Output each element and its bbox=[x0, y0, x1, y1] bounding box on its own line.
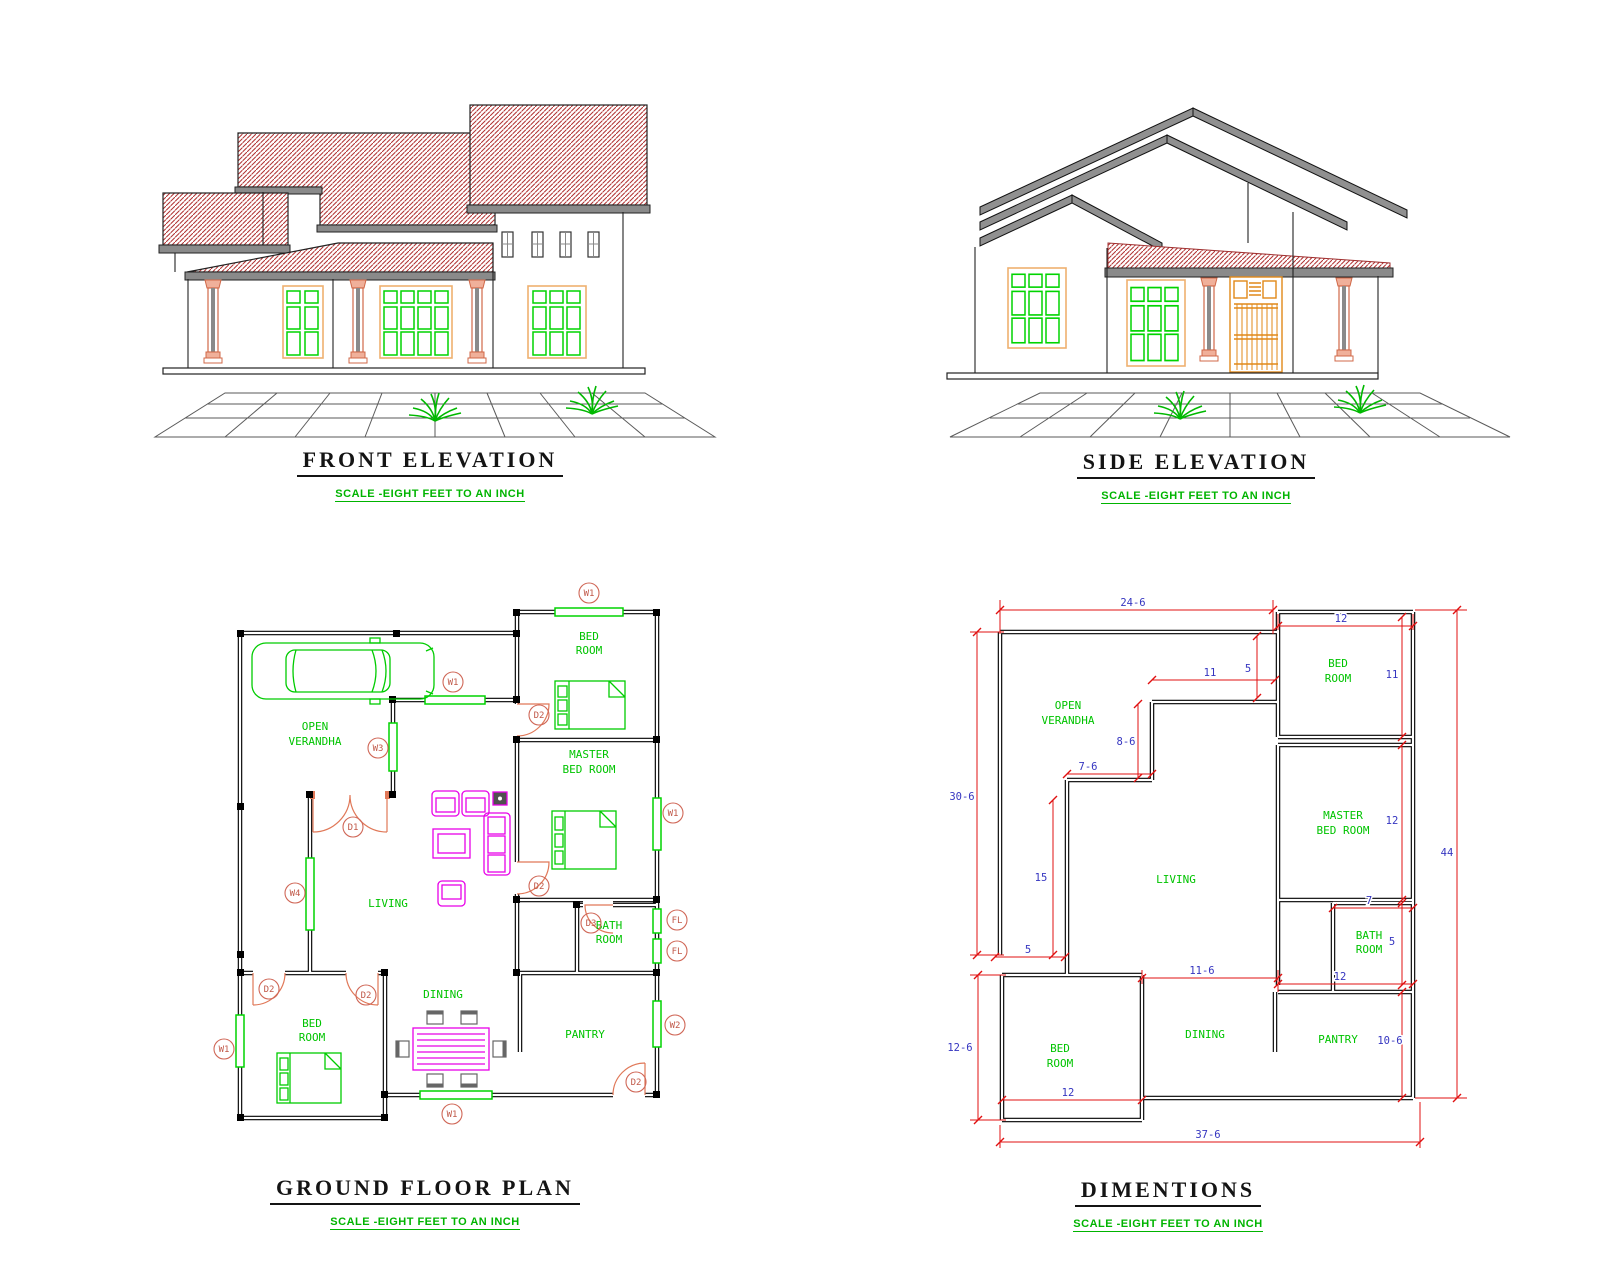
room-label-bath: ROOM bbox=[596, 933, 623, 946]
room-label-bath: BATH bbox=[1356, 929, 1383, 942]
dim-value: 5 bbox=[1025, 944, 1031, 956]
room-label-bedroom-top: ROOM bbox=[576, 644, 603, 657]
upper-right-roof bbox=[467, 105, 650, 213]
ground-line bbox=[947, 373, 1378, 379]
front-elevation-title-block: FRONT ELEVATION SCALE -EIGHT FEET TO AN … bbox=[230, 447, 630, 502]
room-label-dining: DINING bbox=[1185, 1028, 1225, 1041]
window bbox=[528, 286, 586, 358]
room-label-bath: ROOM bbox=[1356, 943, 1383, 956]
door-marker: D1 bbox=[348, 823, 359, 833]
veranda-roof bbox=[1105, 243, 1393, 277]
dimensions-title-block: DIMENTIONS SCALE -EIGHT FEET TO AN INCH bbox=[968, 1177, 1368, 1232]
dim-value: 7-6 bbox=[1079, 761, 1098, 773]
cad-drawing-sheet: OPEN VERANDHA BED ROOM MASTER BED ROOM L… bbox=[0, 0, 1600, 1280]
window-marker: W1 bbox=[447, 1110, 458, 1120]
dim-value: 5 bbox=[1245, 663, 1251, 675]
dim-value: 44 bbox=[1441, 847, 1454, 859]
window bbox=[380, 286, 452, 358]
window-marker: W1 bbox=[584, 589, 595, 599]
dimensions-title: DIMENTIONS bbox=[1075, 1177, 1261, 1207]
room-label-master: MASTER bbox=[1323, 809, 1363, 822]
door-marker: D2 bbox=[534, 711, 545, 721]
room-label-master: BED ROOM bbox=[1317, 824, 1370, 837]
room-label-dining: DINING bbox=[423, 988, 463, 1001]
dim-value: 37-6 bbox=[1195, 1129, 1220, 1141]
window bbox=[1127, 280, 1185, 366]
side-elevation-drawing bbox=[900, 80, 1520, 450]
room-label-pantry: PANTRY bbox=[565, 1028, 605, 1041]
dim-value: 8-6 bbox=[1117, 736, 1136, 748]
dim-value: 7 bbox=[1366, 895, 1372, 907]
room-label-open-veranda: OPEN bbox=[1055, 699, 1082, 712]
door-marker: D2 bbox=[264, 985, 275, 995]
room-label-bedroom-bottom: BED bbox=[302, 1017, 322, 1030]
bed-icon bbox=[555, 681, 625, 729]
window-marker: W1 bbox=[219, 1045, 230, 1055]
side-elevation-scale-note: SCALE -EIGHT FEET TO AN INCH bbox=[1101, 490, 1290, 504]
dimensions-scale-note: SCALE -EIGHT FEET TO AN INCH bbox=[1073, 1218, 1262, 1232]
room-label-pantry: PANTRY bbox=[1318, 1033, 1358, 1046]
window-marker: W3 bbox=[373, 744, 384, 754]
ground-floor-plan-drawing: OPEN VERANDHA BED ROOM MASTER BED ROOM L… bbox=[200, 565, 700, 1135]
room-label-bath: BATH bbox=[596, 919, 623, 932]
window bbox=[283, 286, 323, 358]
window-marker: FL bbox=[672, 947, 683, 957]
dim-value: 15 bbox=[1035, 872, 1048, 884]
door-marker: D2 bbox=[361, 991, 372, 1001]
dim-value: 12 bbox=[1386, 815, 1399, 827]
dimensions-plan-drawing: 24-6 12 30-6 11 5 8-6 7-6 15 5 12-6 11-6… bbox=[940, 580, 1485, 1155]
dim-value: 5 bbox=[1389, 936, 1395, 948]
dim-value: 11 bbox=[1386, 669, 1399, 681]
room-label-bedroom-bottom: ROOM bbox=[1047, 1057, 1074, 1070]
room-label-master: MASTER bbox=[569, 748, 609, 761]
dim-value: 24-6 bbox=[1120, 597, 1145, 609]
room-label-open-veranda: VERANDHA bbox=[289, 735, 342, 748]
room-label-living: LIVING bbox=[1156, 873, 1196, 886]
dim-value: 11 bbox=[1204, 667, 1217, 679]
ground-floor-plan-title: GROUND FLOOR PLAN bbox=[270, 1175, 580, 1205]
dim-value: 12 bbox=[1335, 613, 1348, 625]
door-marker: D2 bbox=[534, 882, 545, 892]
ground-line bbox=[163, 368, 645, 374]
room-label-bedroom-top: ROOM bbox=[1325, 672, 1352, 685]
bed-icon bbox=[277, 1053, 341, 1103]
ground-floor-plan-scale-note: SCALE -EIGHT FEET TO AN INCH bbox=[330, 1216, 519, 1230]
gate-door bbox=[1230, 277, 1282, 372]
dim-value: 12-6 bbox=[947, 1042, 972, 1054]
front-elevation-scale-note: SCALE -EIGHT FEET TO AN INCH bbox=[335, 488, 524, 502]
door-marker: D3 bbox=[586, 919, 597, 929]
dim-value: 12 bbox=[1334, 971, 1347, 983]
dining-table-icon bbox=[396, 1011, 506, 1087]
window-marker: W4 bbox=[290, 889, 301, 899]
front-elevation-title: FRONT ELEVATION bbox=[297, 447, 564, 477]
door-marker: D2 bbox=[631, 1078, 642, 1088]
room-label-living: LIVING bbox=[368, 897, 408, 910]
sofa-icon bbox=[432, 791, 510, 906]
room-label-bedroom-bottom: ROOM bbox=[299, 1031, 326, 1044]
window-marker: FL bbox=[672, 916, 683, 926]
room-label-bedroom-top: BED bbox=[1328, 657, 1348, 670]
window-marker: W1 bbox=[448, 678, 459, 688]
room-label-open-veranda: OPEN bbox=[302, 720, 329, 733]
dim-value: 11-6 bbox=[1189, 965, 1214, 977]
ground-floor-plan-title-block: GROUND FLOOR PLAN SCALE -EIGHT FEET TO A… bbox=[225, 1175, 625, 1230]
left-roof bbox=[159, 193, 290, 253]
room-label-bedroom-bottom: BED bbox=[1050, 1042, 1070, 1055]
window bbox=[1008, 268, 1066, 348]
side-elevation-title: SIDE ELEVATION bbox=[1077, 449, 1315, 479]
room-label-master: BED ROOM bbox=[563, 763, 616, 776]
car-icon bbox=[252, 638, 434, 704]
room-label-open-veranda: VERANDHA bbox=[1042, 714, 1095, 727]
bed-icon bbox=[552, 811, 616, 869]
room-label-bedroom-top: BED bbox=[579, 630, 599, 643]
window-marker: W2 bbox=[670, 1021, 681, 1031]
window-marker: W1 bbox=[668, 809, 679, 819]
front-elevation-drawing bbox=[130, 80, 780, 450]
dim-value: 12 bbox=[1062, 1087, 1075, 1099]
gable-roof bbox=[980, 108, 1407, 251]
side-elevation-title-block: SIDE ELEVATION SCALE -EIGHT FEET TO AN I… bbox=[996, 449, 1396, 504]
dim-value: 30-6 bbox=[949, 791, 974, 803]
ground-grid bbox=[950, 393, 1510, 437]
dim-value: 10-6 bbox=[1377, 1035, 1402, 1047]
